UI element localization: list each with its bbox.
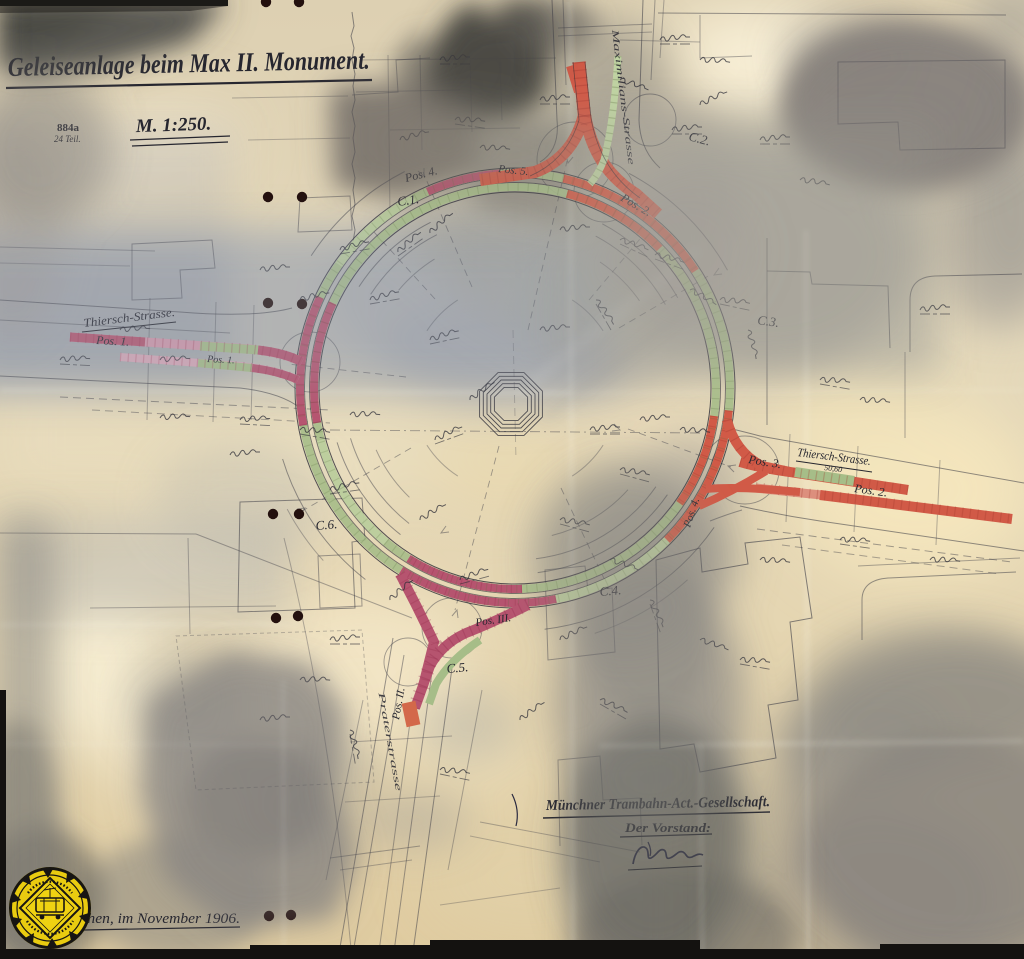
svg-text:M. 1:250.: M. 1:250. <box>134 114 211 138</box>
svg-text:C.5.: C.5. <box>446 659 469 676</box>
svg-text:Pos. 1.: Pos. 1. <box>206 354 235 366</box>
svg-text:Der Vorstand:: Der Vorstand: <box>624 820 711 835</box>
svg-text:C.1.: C.1. <box>396 191 420 209</box>
svg-text:C.3.: C.3. <box>757 312 781 330</box>
svg-text:Pos. 1.: Pos. 1. <box>95 333 130 349</box>
svg-text:C.4.: C.4. <box>599 582 622 599</box>
svg-text:884a: 884a <box>57 122 80 134</box>
svg-text:24 Teil.: 24 Teil. <box>54 134 81 144</box>
svg-text:C.6.: C.6. <box>315 516 338 533</box>
